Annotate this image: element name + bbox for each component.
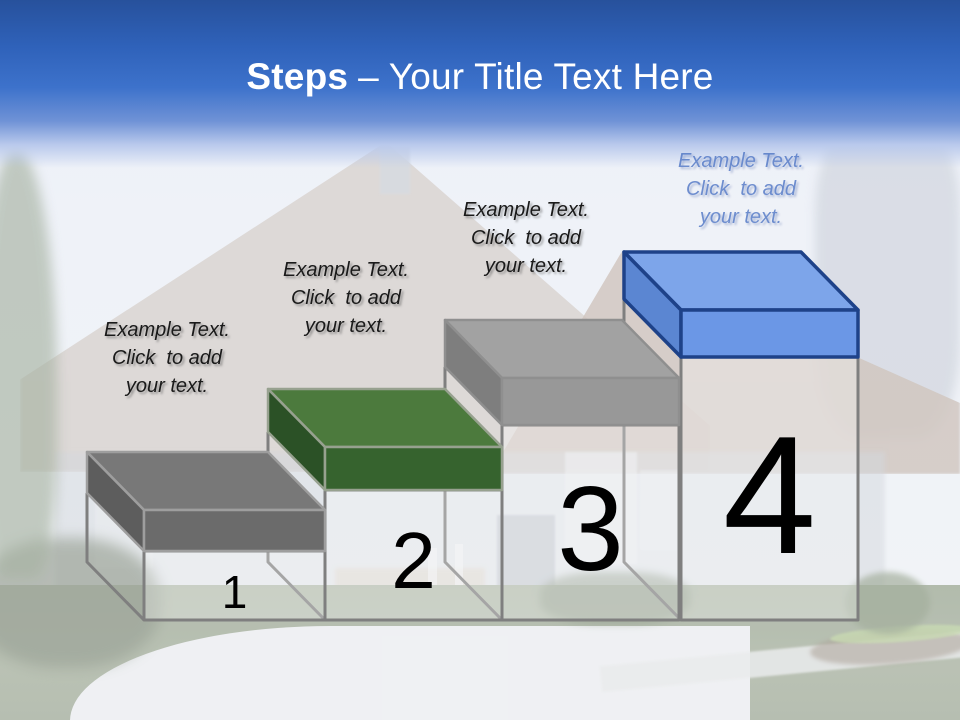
step-2-slab[interactable]	[268, 389, 502, 490]
step-4-placeholder-text[interactable]: Example Text. Click to add your text.	[631, 147, 851, 231]
step-1-number[interactable]: 1	[144, 557, 325, 626]
step-4-slab-front-face	[681, 310, 858, 357]
step-2-slab-front-face	[325, 447, 502, 490]
step-3-number[interactable]: 3	[502, 431, 679, 626]
step-4-number[interactable]: 4	[681, 363, 858, 626]
step-3-slab[interactable]	[445, 320, 679, 425]
step-1-slab[interactable]	[87, 452, 325, 551]
step-3-slab-front-face	[502, 378, 679, 425]
step-2-number[interactable]: 2	[325, 496, 502, 626]
step-1-slab-front-face	[144, 510, 325, 551]
step-4-slab[interactable]	[624, 252, 858, 357]
slide: Steps– Your Title Text Here	[0, 0, 960, 720]
step-3-placeholder-text[interactable]: Example Text. Click to add your text.	[416, 196, 636, 280]
